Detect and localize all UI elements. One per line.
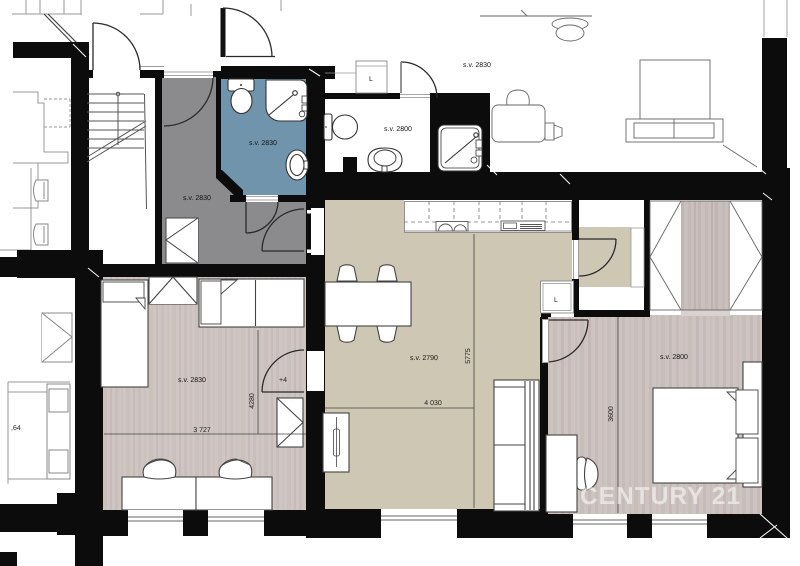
svg-text:L: L — [369, 76, 373, 83]
svg-text:s.v. 2830: s.v. 2830 — [463, 62, 491, 69]
svg-text:+4: +4 — [279, 377, 287, 384]
svg-text:3600: 3600 — [608, 406, 615, 422]
svg-text:4280: 4280 — [249, 393, 256, 409]
svg-text:5775: 5775 — [465, 348, 472, 364]
svg-text:s.v. 2800: s.v. 2800 — [384, 126, 412, 133]
svg-text:,64: ,64 — [11, 425, 21, 432]
svg-text:s.v. 2830: s.v. 2830 — [183, 195, 211, 202]
svg-text:s.v. 2800: s.v. 2800 — [660, 354, 688, 361]
svg-text:4 030: 4 030 — [424, 400, 442, 407]
svg-text:3 727: 3 727 — [193, 427, 211, 434]
svg-text:s.v. 2830: s.v. 2830 — [249, 140, 277, 147]
svg-text:CENTURY 21: CENTURY 21 — [580, 483, 741, 510]
svg-text:L: L — [554, 297, 558, 304]
svg-text:s.v. 2830: s.v. 2830 — [178, 377, 206, 384]
svg-text:s.v. 2790: s.v. 2790 — [410, 355, 438, 362]
